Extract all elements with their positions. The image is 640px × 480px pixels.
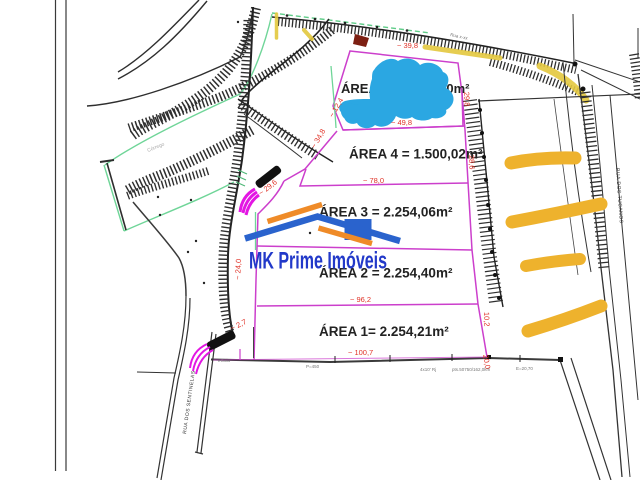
svg-text:~ 100,7: ~ 100,7 [348,348,373,357]
svg-text:ÁREA 1= 2.254,21m²: ÁREA 1= 2.254,21m² [319,324,449,339]
svg-text:~ 39,8: ~ 39,8 [397,41,418,50]
svg-text:4x10' Rj: 4x10' Rj [420,367,436,372]
svg-text:29,8: 29,8 [462,92,472,107]
svg-text:ÁREA 4 = 1.500,02m²: ÁREA 4 = 1.500,02m² [349,147,483,162]
svg-text:~ 24,0: ~ 24,0 [233,259,243,281]
svg-text:E=20,70: E=20,70 [516,366,533,371]
svg-text:MK Prime Imóveis: MK Prime Imóveis [249,248,387,275]
svg-text:~ 78,0: ~ 78,0 [363,176,384,185]
svg-text:~ 49,8: ~ 49,8 [391,118,412,127]
svg-text:ÁREA 3 = 2.254,06m²: ÁREA 3 = 2.254,06m² [319,205,453,220]
svg-text:10,2: 10,2 [482,312,492,327]
svg-text:28,6: 28,6 [467,155,477,170]
svg-text:eGuia: eGuia [218,358,231,363]
svg-text:P=450: P=450 [306,364,320,369]
svg-text:pts.50750/162,0km: pts.50750/162,0km [452,367,491,372]
svg-text:~ 96,2: ~ 96,2 [350,295,371,304]
